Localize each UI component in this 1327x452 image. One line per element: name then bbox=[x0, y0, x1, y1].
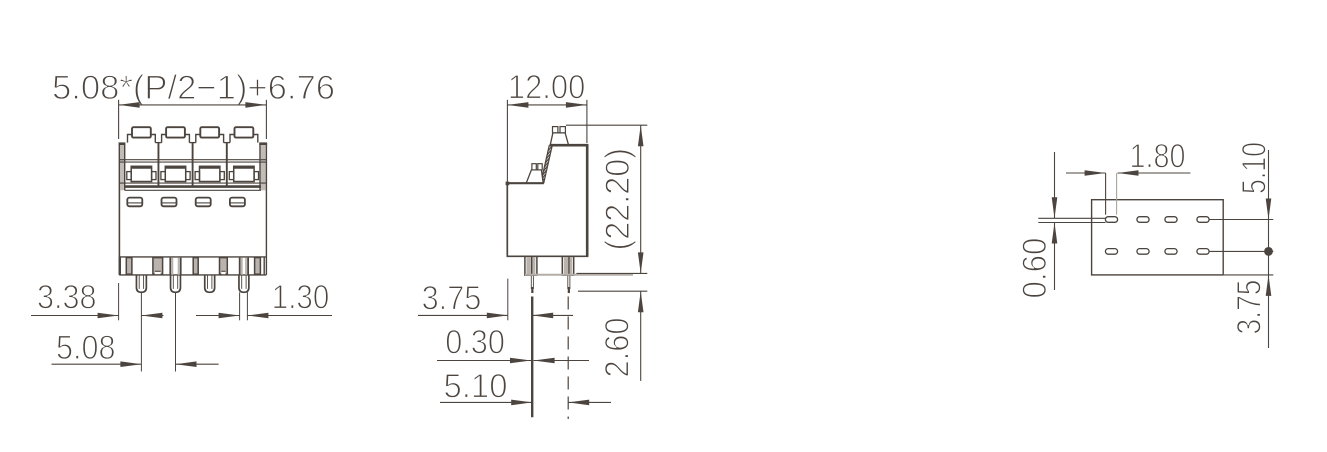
svg-text:12.00: 12.00 bbox=[508, 69, 585, 107]
svg-text:3.38: 3.38 bbox=[37, 279, 97, 317]
svg-text:5.08*(P/2−1)+6.76: 5.08*(P/2−1)+6.76 bbox=[52, 69, 335, 107]
svg-text:3.75: 3.75 bbox=[1231, 280, 1269, 335]
svg-text:0.60: 0.60 bbox=[1016, 238, 1054, 299]
svg-text:0.30: 0.30 bbox=[445, 324, 505, 362]
svg-text:1.30: 1.30 bbox=[272, 279, 330, 317]
svg-text:5.08: 5.08 bbox=[56, 329, 116, 367]
svg-text:1.80: 1.80 bbox=[1130, 137, 1186, 175]
svg-text:(22.20): (22.20) bbox=[599, 148, 637, 251]
svg-text:2.60: 2.60 bbox=[599, 318, 637, 378]
svg-text:5.10: 5.10 bbox=[1236, 142, 1274, 194]
svg-text:5.10: 5.10 bbox=[444, 368, 508, 406]
svg-text:3.75: 3.75 bbox=[422, 280, 482, 318]
